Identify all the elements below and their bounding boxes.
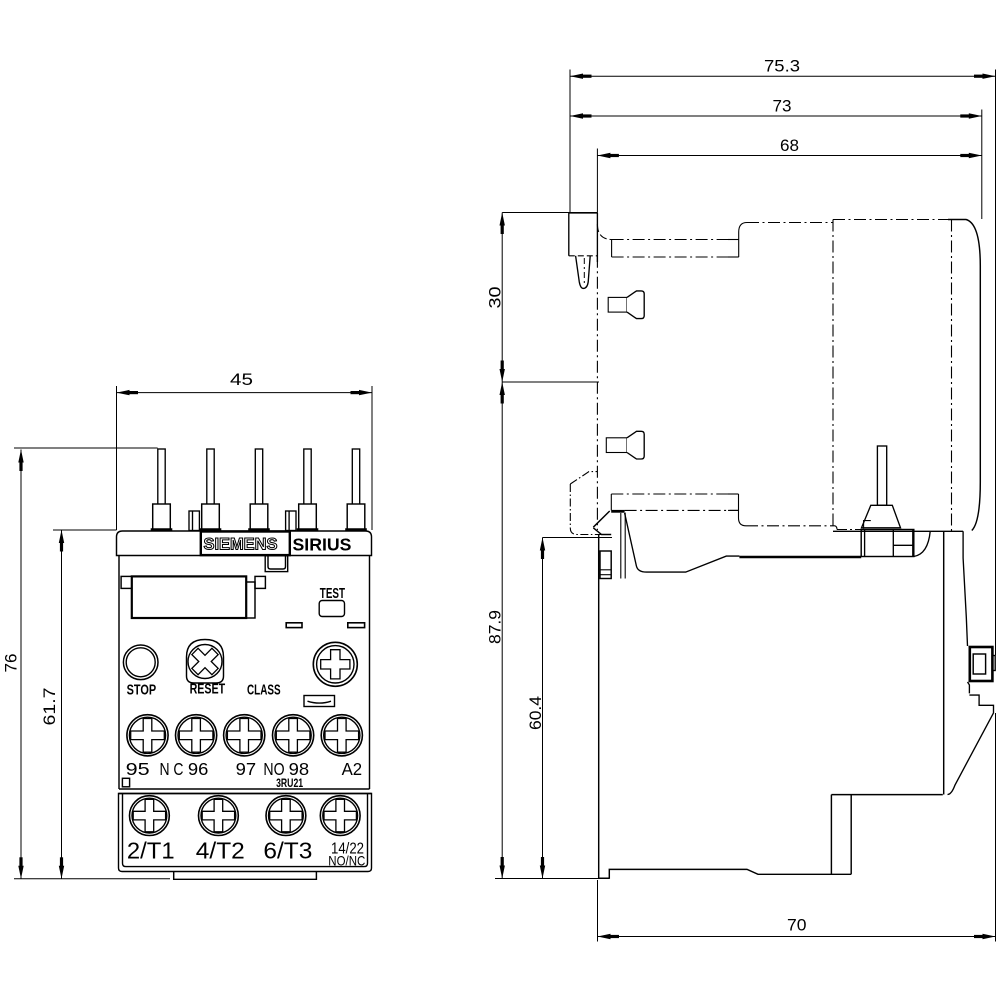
svg-text:CLASS: CLASS bbox=[247, 681, 281, 698]
svg-text:61.7: 61.7 bbox=[40, 688, 59, 726]
svg-text:NO/NC: NO/NC bbox=[328, 853, 365, 869]
svg-text:2/T1: 2/T1 bbox=[127, 838, 175, 864]
svg-text:98: 98 bbox=[289, 759, 310, 779]
svg-text:76: 76 bbox=[2, 654, 21, 673]
svg-text:95: 95 bbox=[126, 759, 150, 779]
svg-text:97: 97 bbox=[236, 759, 257, 779]
svg-text:NO: NO bbox=[263, 759, 284, 779]
svg-text:30: 30 bbox=[486, 287, 505, 309]
svg-text:96: 96 bbox=[188, 759, 209, 779]
svg-text:A2: A2 bbox=[342, 759, 363, 779]
svg-text:60.4: 60.4 bbox=[526, 696, 545, 730]
svg-text:3RU21: 3RU21 bbox=[276, 778, 303, 790]
svg-text:SIEMENS: SIEMENS bbox=[204, 536, 278, 554]
svg-text:87.9: 87.9 bbox=[486, 610, 505, 644]
svg-text:6/T3: 6/T3 bbox=[263, 838, 312, 864]
svg-text:TEST: TEST bbox=[320, 585, 345, 602]
svg-text:73: 73 bbox=[773, 97, 792, 116]
svg-text:45: 45 bbox=[230, 370, 253, 389]
svg-text:RESET: RESET bbox=[190, 681, 226, 698]
svg-text:N C: N C bbox=[160, 759, 184, 779]
svg-text:SIRIUS: SIRIUS bbox=[293, 535, 352, 555]
svg-text:STOP: STOP bbox=[127, 681, 157, 698]
svg-text:4/T2: 4/T2 bbox=[196, 838, 245, 864]
svg-text:75.3: 75.3 bbox=[764, 57, 800, 76]
svg-text:68: 68 bbox=[780, 136, 799, 155]
svg-text:70: 70 bbox=[787, 916, 807, 935]
